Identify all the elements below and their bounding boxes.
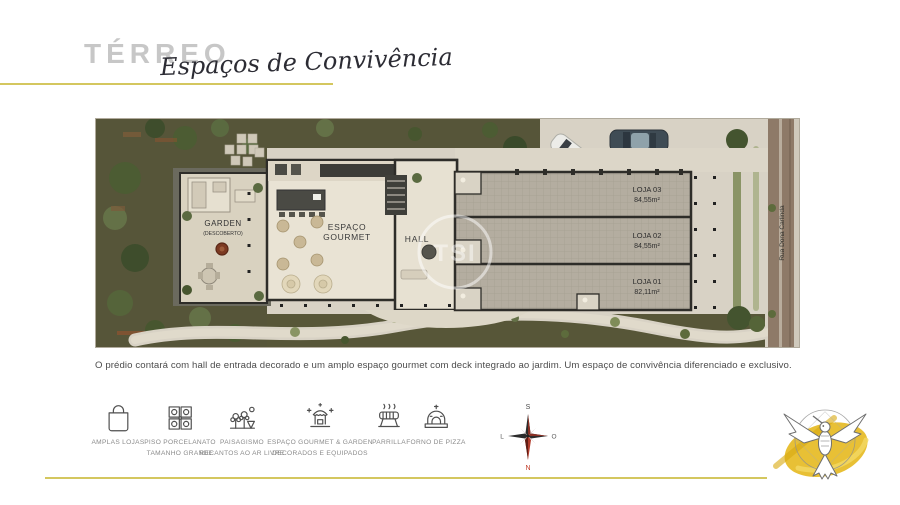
compass-south-label: S <box>526 404 531 411</box>
shopping-bag-icon <box>101 401 135 435</box>
street-name-label: Rua Dona Carlinda <box>779 205 786 261</box>
feature-parrilla: PARRILLA <box>372 401 406 448</box>
lojas-block: LOJA 03 84,55m² LOJA 02 84,55m² LOJA 01 … <box>455 169 716 310</box>
garden-sublabel: (DESCOBERTO) <box>203 231 243 237</box>
hall-label: HALL <box>405 234 429 244</box>
front-walkway <box>455 148 768 172</box>
feature-label2: DECORADOS E EQUIPADOS <box>267 448 373 459</box>
presentation-page: TÉRREO Espaços de Convivência <box>0 0 900 505</box>
street: Rua Dona Carlinda <box>768 118 800 348</box>
header-divider-line <box>0 83 333 85</box>
compass-east-label: O <box>551 434 556 441</box>
footer-divider-line <box>45 477 767 479</box>
gourmet-label-line1: ESPAÇO <box>328 222 366 232</box>
tile-icon <box>163 401 197 435</box>
garden-deck: GARDEN (DESCOBERTO) <box>173 168 271 306</box>
gourmet-garden-icon <box>303 401 337 435</box>
feature-amplas-lojas: AMPLAS LOJAS <box>91 401 144 448</box>
landscaping-icon <box>225 401 259 435</box>
compass-west-label: L <box>500 434 504 441</box>
feature-label: FORNO DE PIZZA <box>406 437 466 448</box>
loja-03-name: LOJA 03 <box>633 185 662 194</box>
compass-rose: S L O N <box>491 398 565 479</box>
compass-star <box>508 414 548 460</box>
feature-espaco-gourmet-garden: ESPAÇO GOURMET & GARDEN DECORADOS E EQUI… <box>267 401 373 459</box>
feature-label: PARRILLA <box>372 437 406 448</box>
feature-label: AMPLAS LOJAS <box>91 437 144 448</box>
grill-icon <box>372 401 406 435</box>
description-text: O prédio contará com hall de entrada dec… <box>95 360 815 371</box>
floor-plan: Rua Dona Carlinda <box>95 118 800 348</box>
feature-label: ESPAÇO GOURMET & GARDEN <box>267 437 373 448</box>
gourmet-label-line2: GOURMET <box>323 232 371 242</box>
loja-02-name: LOJA 02 <box>633 231 662 240</box>
svg-text:TSI: TSI <box>433 240 476 267</box>
compass-north-label: N <box>525 465 530 472</box>
floor-plan-rendering: Rua Dona Carlinda <box>95 118 800 348</box>
pizza-oven-icon <box>419 401 453 435</box>
loja-02-area: 84,55m² <box>634 243 660 250</box>
brand-logo <box>766 386 884 505</box>
loja-03-area: 84,55m² <box>634 197 660 204</box>
loja-01-area: 82,11m² <box>634 289 660 296</box>
garden-label: GARDEN <box>204 219 241 228</box>
feature-forno-de-pizza: FORNO DE PIZZA <box>406 401 466 448</box>
loja-01-name: LOJA 01 <box>633 277 662 286</box>
